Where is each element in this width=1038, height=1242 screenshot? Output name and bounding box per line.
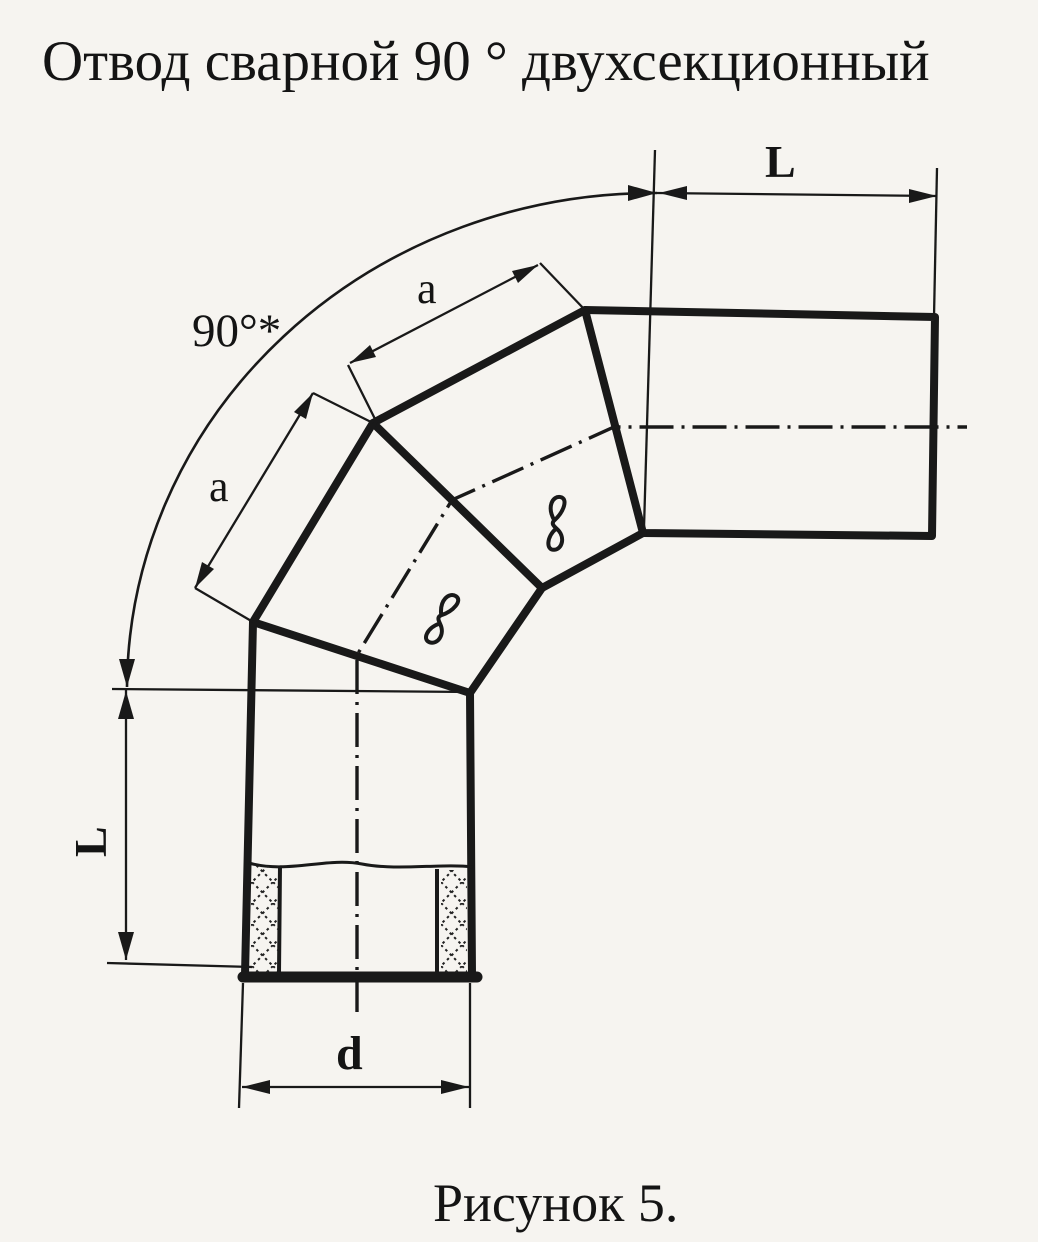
dim-line-L-top — [657, 193, 937, 196]
extension-lines — [107, 150, 937, 1108]
arrow-L-top-left — [659, 186, 687, 200]
label-L-top: L — [765, 136, 796, 187]
arrow-arc-bottom — [119, 659, 135, 687]
figure-caption: Рисунок 5. — [433, 1173, 678, 1233]
lower-section-outline — [253, 423, 542, 693]
arrow-a-lower-sw — [195, 562, 214, 588]
pipe-end-section-view — [249, 862, 473, 974]
arrow-d-right — [441, 1080, 469, 1094]
scanned-drawing-page: Отвод сварной 90 ° двухсекционный L L a … — [0, 0, 1038, 1242]
label-d: d — [336, 1027, 363, 1080]
ext-line-a-lower-2 — [195, 588, 253, 622]
arrow-L-left-top — [118, 691, 134, 719]
wall-hatch-right — [441, 870, 467, 974]
ext-line-L-left-lower — [107, 963, 252, 967]
pipe-horizontal-outline — [585, 310, 935, 536]
elbow-technical-drawing: Отвод сварной 90 ° двухсекционный L L a … — [0, 0, 1038, 1242]
arrow-a-lower-ne — [294, 393, 313, 419]
label-angle-90deg: 90°* — [192, 305, 281, 357]
ext-line-L-left-upper — [112, 689, 470, 692]
label-a-lower: a — [209, 462, 229, 511]
weld-mark-upper — [543, 496, 569, 551]
weld-mark-lower — [420, 592, 463, 646]
ext-line-L-top-right — [934, 168, 937, 317]
arrow-a-upper-sw — [350, 345, 376, 363]
ext-line-L-top-left — [644, 150, 655, 528]
ext-line-a-upper-1 — [540, 263, 585, 310]
arrow-L-top-right — [909, 189, 937, 203]
wall-hatch-left — [251, 866, 279, 974]
arrow-L-left-bottom — [118, 932, 134, 960]
ext-line-d-left — [239, 983, 243, 1108]
upper-section-outline — [373, 310, 643, 588]
page-title: Отвод сварной 90 ° двухсекционный — [42, 30, 930, 93]
ext-line-a-upper-2 — [348, 365, 377, 423]
section-break-line — [249, 862, 473, 867]
arrow-a-upper-ne — [512, 265, 538, 283]
weld-marks — [420, 496, 569, 646]
arrow-d-left — [242, 1080, 270, 1094]
label-a-upper: a — [417, 264, 437, 313]
label-L-left: L — [65, 826, 116, 857]
